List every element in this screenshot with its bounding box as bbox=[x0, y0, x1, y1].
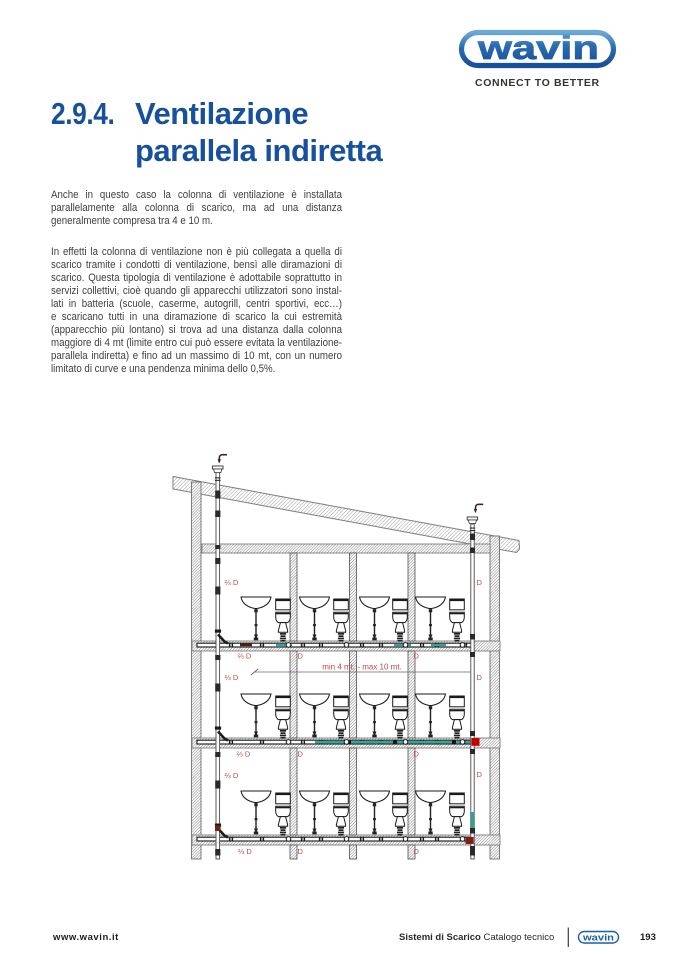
svg-text:min 4 mt. - max 10 mt.: min 4 mt. - max 10 mt. bbox=[322, 663, 402, 672]
svg-text:⅔ D: ⅔ D bbox=[238, 847, 252, 856]
svg-text:D: D bbox=[298, 652, 304, 661]
svg-text:D: D bbox=[477, 578, 483, 587]
svg-text:D: D bbox=[477, 770, 483, 779]
svg-text:D: D bbox=[414, 750, 420, 759]
svg-text:⅔ D: ⅔ D bbox=[225, 578, 239, 587]
svg-text:⅔ D: ⅔ D bbox=[238, 652, 252, 661]
svg-text:D: D bbox=[477, 673, 483, 682]
svg-text:D: D bbox=[414, 652, 420, 661]
svg-text:⅔ D: ⅔ D bbox=[225, 771, 239, 780]
svg-text:D: D bbox=[414, 847, 420, 856]
svg-text:⅔ D: ⅔ D bbox=[225, 673, 239, 682]
svg-text:D: D bbox=[298, 847, 304, 856]
svg-text:D: D bbox=[298, 750, 304, 759]
svg-text:⅔ D: ⅔ D bbox=[237, 750, 251, 759]
